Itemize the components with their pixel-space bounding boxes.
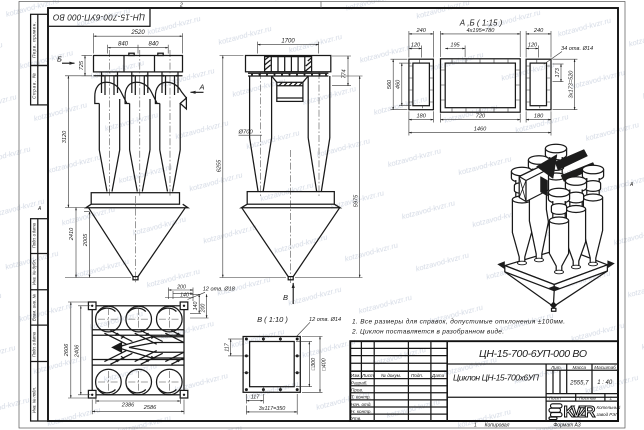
svg-text:3x173=520: 3x173=520 — [568, 70, 574, 99]
svg-text:240: 240 — [416, 28, 427, 34]
svg-text:Формат А3: Формат А3 — [553, 423, 581, 429]
svg-text:Масштаб: Масштаб — [594, 365, 616, 370]
svg-text:2. Циклон поставляется в разоб: 2. Циклон поставляется в разобранном вид… — [351, 328, 504, 336]
svg-text:117: 117 — [225, 342, 231, 352]
svg-text:А ,Б ( 1:15 ): А ,Б ( 1:15 ) — [459, 19, 503, 28]
svg-text:120: 120 — [411, 42, 421, 48]
svg-text:1: 1 — [474, 423, 477, 429]
svg-text:Ø700: Ø700 — [238, 130, 254, 136]
svg-text:840: 840 — [148, 42, 159, 48]
svg-text:120: 120 — [528, 42, 538, 48]
svg-text:В: В — [283, 293, 288, 302]
svg-text:Н. контр.: Н. контр. — [351, 409, 372, 414]
svg-text:KVZR: KVZR — [564, 404, 596, 421]
svg-text:Изм.: Изм. — [351, 373, 361, 378]
svg-text:12 отв. Ø14: 12 отв. Ø14 — [309, 317, 341, 323]
svg-text:4x195=780: 4x195=780 — [466, 28, 495, 34]
svg-text:1 : 40: 1 : 40 — [597, 380, 613, 386]
svg-text:2555,7: 2555,7 — [569, 381, 589, 387]
svg-text:2586: 2586 — [143, 405, 157, 411]
svg-text:ЦН-15-700-6УП-000 ВО: ЦН-15-700-6УП-000 ВО — [479, 348, 587, 360]
svg-text:Т. контр.: Т. контр. — [351, 395, 371, 400]
svg-text:Справ. №: Справ. № — [32, 73, 37, 99]
svg-text:195: 195 — [450, 42, 460, 48]
svg-text:117: 117 — [251, 395, 261, 401]
svg-text:Перв. примен.: Перв. примен. — [32, 22, 37, 58]
svg-text:Циклон ЦН-15-700х6УП: Циклон ЦН-15-700х6УП — [453, 373, 540, 383]
svg-text:Листов: Листов — [578, 395, 596, 400]
svg-text:5975: 5975 — [353, 194, 359, 207]
svg-text:200: 200 — [176, 284, 186, 290]
svg-text:6255: 6255 — [216, 159, 222, 172]
svg-text:завод РЭП: завод РЭП — [596, 412, 620, 417]
svg-text:2406: 2406 — [74, 344, 80, 358]
svg-text:Масса: Масса — [573, 365, 587, 370]
svg-text:Лист: Лист — [548, 395, 561, 400]
svg-text:2: 2 — [179, 3, 183, 9]
svg-text:№ докум.: № докум. — [381, 373, 401, 378]
svg-text:2520: 2520 — [130, 30, 145, 36]
svg-text:180: 180 — [417, 114, 427, 120]
svg-text:В ( 1:10 ): В ( 1:10 ) — [257, 315, 288, 324]
svg-text:Б: Б — [57, 55, 62, 64]
svg-text:2410: 2410 — [69, 227, 75, 241]
svg-text:720: 720 — [476, 114, 486, 120]
svg-text:200: 200 — [200, 304, 206, 314]
svg-text:Подп.: Подп. — [411, 373, 423, 378]
svg-text:560: 560 — [387, 79, 393, 89]
svg-text:1. Все размеры для справок, до: 1. Все размеры для справок, допустимые о… — [352, 318, 565, 326]
svg-text:34 отв. Ø14: 34 отв. Ø14 — [561, 46, 593, 52]
svg-text:3x117=350: 3x117=350 — [259, 406, 285, 412]
svg-text:□300: □300 — [311, 358, 317, 370]
svg-text:□400: □400 — [321, 358, 327, 370]
svg-text:2386: 2386 — [121, 402, 135, 408]
svg-text:460: 460 — [396, 79, 402, 89]
svg-text:А: А — [199, 83, 205, 92]
svg-text:Лит.: Лит. — [550, 365, 562, 370]
svg-text:Инв. № дубл.: Инв. № дубл. — [32, 259, 37, 285]
svg-text:Инв. № подл.: Инв. № подл. — [32, 387, 37, 413]
svg-text:173: 173 — [555, 67, 561, 77]
svg-text:А: А — [37, 206, 42, 212]
svg-text:Дата: Дата — [431, 373, 445, 378]
svg-text:Взам. инв. №: Взам. инв. № — [32, 294, 37, 321]
svg-text:ЦН-15-700-6УП-000 ВО: ЦН-15-700-6УП-000 ВО — [52, 12, 145, 21]
svg-text:140: 140 — [180, 293, 189, 299]
svg-text:725: 725 — [79, 60, 85, 70]
svg-text:Разраб.: Разраб. — [351, 381, 368, 386]
svg-text:Копировал: Копировал — [485, 423, 510, 429]
svg-text:2005: 2005 — [83, 233, 89, 247]
svg-text:840: 840 — [118, 42, 129, 48]
svg-text:Пров.: Пров. — [351, 388, 363, 393]
svg-text:Нач. отд.: Нач. отд. — [351, 402, 372, 407]
svg-text:140: 140 — [193, 302, 199, 311]
svg-text:3120: 3120 — [62, 130, 68, 143]
svg-text:774: 774 — [341, 69, 347, 78]
svg-text:240: 240 — [533, 28, 544, 34]
svg-text:12 отв. Ø18: 12 отв. Ø18 — [203, 287, 236, 293]
svg-text:Подп. и дата: Подп. и дата — [32, 222, 37, 248]
svg-text:1700: 1700 — [281, 38, 295, 44]
svg-text:Котельный: Котельный — [597, 405, 621, 410]
svg-text:180: 180 — [534, 114, 544, 120]
svg-text:Лист: Лист — [361, 373, 374, 378]
svg-text:Подп. и дата: Подп. и дата — [32, 331, 37, 357]
svg-text:А: А — [629, 182, 634, 188]
svg-text:1460: 1460 — [474, 126, 487, 132]
svg-text:Утв.: Утв. — [351, 416, 361, 421]
svg-text:1: 1 — [610, 395, 613, 400]
svg-text:2606: 2606 — [64, 343, 70, 357]
